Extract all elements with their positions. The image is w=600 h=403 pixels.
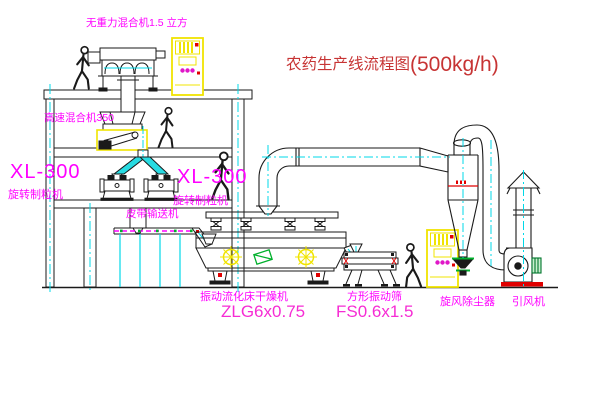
page-title-capacity: (500kg/h) xyxy=(410,53,499,76)
page-title: 农药生产线流程图 xyxy=(286,55,410,73)
cyclone-red-marks xyxy=(456,181,466,185)
label-gravity-mixer: 无重力混合机1.5 立方 xyxy=(86,16,188,29)
person-figure-roof xyxy=(74,47,89,89)
label-granulator-left-model: XL-300 xyxy=(10,161,81,183)
label-dryer-model: ZLG6x0.75 xyxy=(221,302,305,321)
label-sieve-model: FS0.6x1.5 xyxy=(336,302,414,321)
diagram-canvas: 农药生产线流程图 (500kg/h) 无重力混合机1.5 立方 高速混合机350… xyxy=(0,0,600,403)
person-figure-level2 xyxy=(159,108,173,148)
dryer-feet xyxy=(210,271,328,284)
person-figure-ground xyxy=(406,244,421,287)
mixer-down-chute xyxy=(121,76,135,112)
label-high-speed-mixer: 高速混合机350 xyxy=(44,111,114,124)
induced-draft-fan xyxy=(501,170,543,287)
label-belt-conveyor: 皮带输送机 xyxy=(126,207,179,220)
label-fan: 引风机 xyxy=(512,294,545,308)
label-dryer-name: 振动流化床干燥机 xyxy=(200,289,288,303)
label-granulator-center-name: 旋转制粒机 xyxy=(173,193,228,207)
y-splitter-chute xyxy=(114,157,168,174)
fluid-bed-dryer xyxy=(196,212,361,284)
main-duct xyxy=(256,145,450,216)
control-cabinet-upper xyxy=(172,38,203,95)
cad-drawing: 农药生产线流程图 (500kg/h) 无重力混合机1.5 立方 高速混合机350… xyxy=(0,0,600,403)
granulator-left xyxy=(100,174,134,200)
floor-slab-top xyxy=(44,90,252,99)
label-granulator-left-name: 旋转制粒机 xyxy=(8,187,63,201)
label-cyclone: 旋风除尘器 xyxy=(440,294,495,308)
label-granulator-center-model: XL-300 xyxy=(177,166,248,188)
gravity-free-mixer xyxy=(88,48,165,112)
label-sieve-name: 方形振动筛 xyxy=(347,289,402,303)
